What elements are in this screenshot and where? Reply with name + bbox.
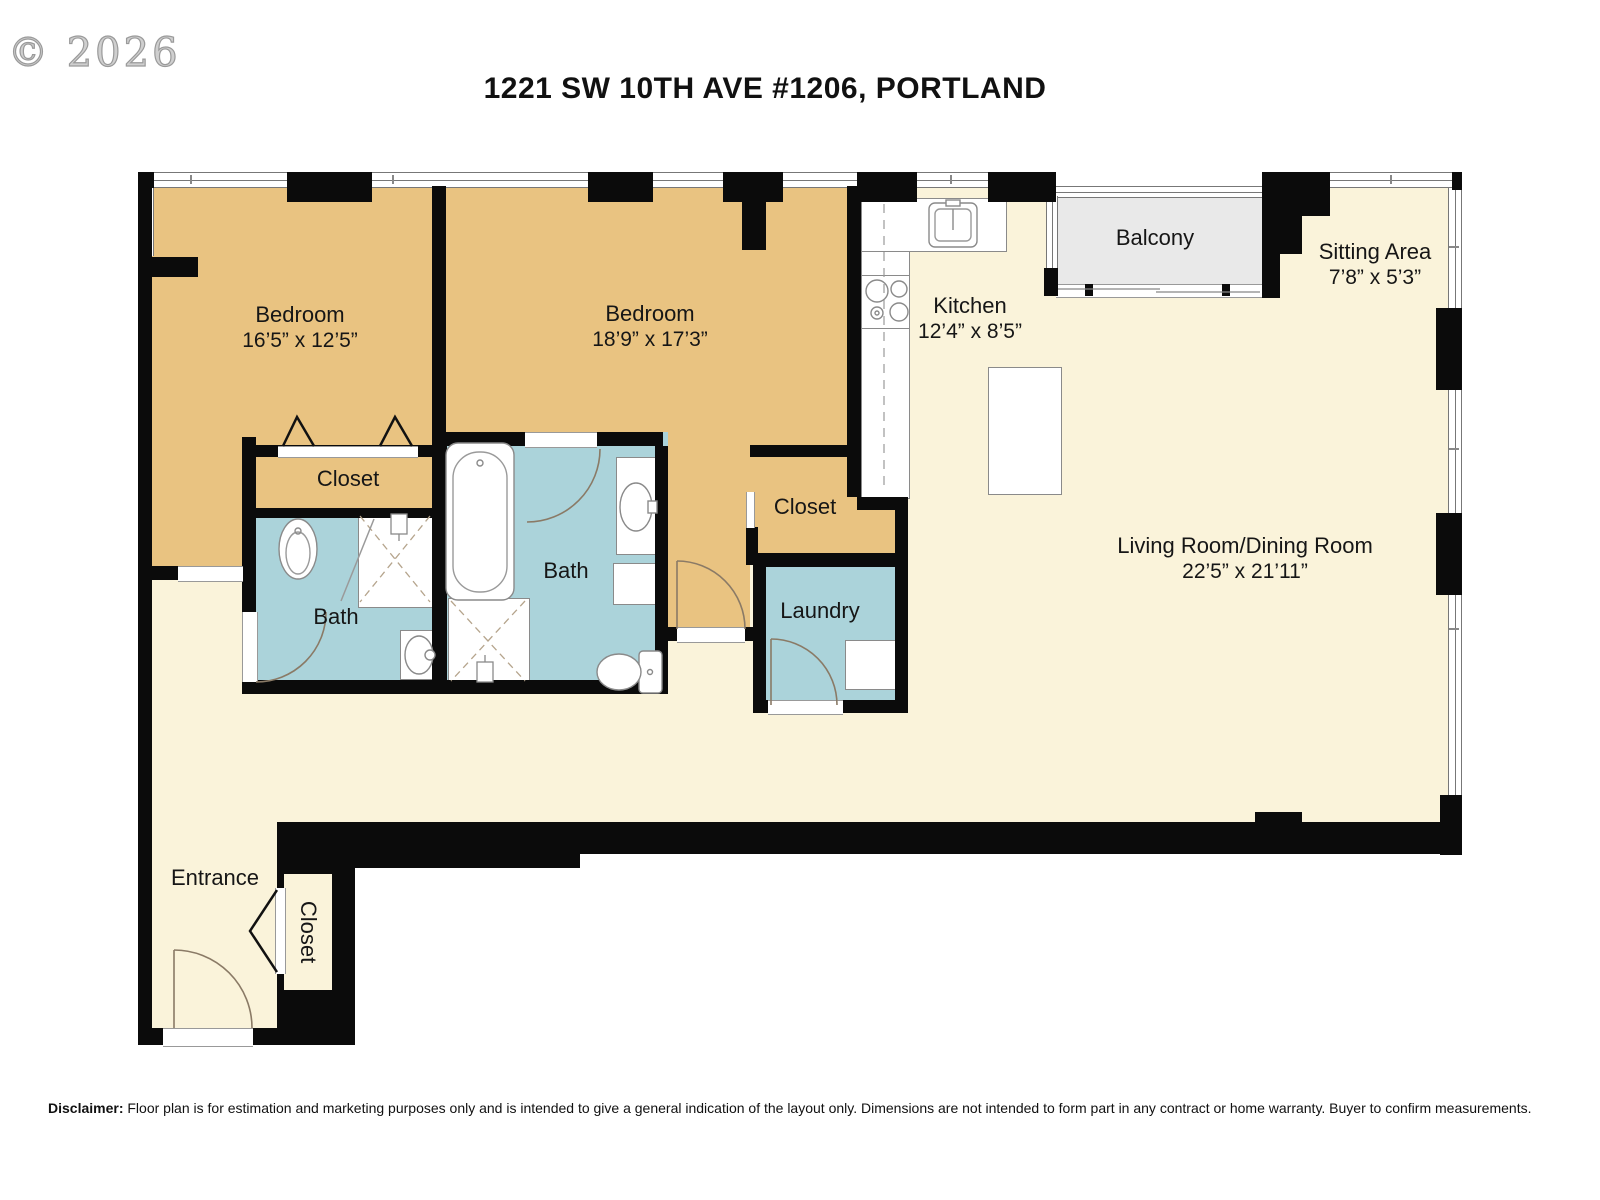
room-label-bedroom-2: Bedroom 18’9” x 17’3”: [592, 301, 708, 353]
wall-top-3-stem: [742, 186, 766, 250]
room-label-entrance: Entrance: [171, 865, 259, 891]
wall-left-step: [152, 257, 198, 277]
wall-closet-2-south: [753, 553, 908, 567]
window-mullion: [392, 175, 394, 184]
copyright-watermark: © 2026: [8, 30, 181, 76]
bath-2-door-opening: [525, 432, 597, 448]
balcony-door-stop: [1085, 284, 1093, 296]
window-mullion: [190, 175, 192, 184]
sink-2-counter: [616, 457, 660, 555]
vestibule-door-opening: [677, 627, 745, 643]
room-label-bedroom-1: Bedroom 16’5” x 12’5”: [242, 302, 358, 354]
wall-bath-2-east: [655, 446, 668, 694]
window-right: [1448, 188, 1462, 820]
page-title: 1221 SW 10TH AVE #1206, PORTLAND: [484, 72, 1047, 106]
wall-top-4: [857, 172, 917, 202]
wall-laundry-west: [753, 567, 766, 713]
floor-plan-page: © 2026 1221 SW 10TH AVE #1206, PORTLAND: [0, 0, 1600, 1200]
room-label-closet-1: Closet: [317, 466, 379, 492]
wall-closet-2-north: [750, 445, 861, 457]
wall-top-1: [287, 172, 372, 202]
window-mullion: [1449, 246, 1459, 248]
entry-door-opening: [163, 1028, 253, 1047]
washer-icon: [845, 640, 897, 690]
wall-closet-1-back: [256, 508, 432, 518]
wall-vestibule-r: [745, 627, 753, 641]
window-mullion: [1449, 628, 1459, 630]
bedroom-1-opening: [178, 566, 243, 582]
wall-balcony-step-2: [1262, 216, 1302, 254]
wall-kitchen-west: [847, 186, 861, 497]
laundry-door-opening: [768, 700, 843, 715]
room-label-kitchen: Kitchen 12’4” x 8’5”: [918, 293, 1022, 345]
room-label-balcony: Balcony: [1116, 225, 1194, 251]
wall-top-2: [588, 172, 653, 202]
shower-1-icon: [358, 512, 434, 608]
wall-bedroom-divider: [432, 186, 446, 450]
room-label-bath-1: Bath: [313, 604, 358, 630]
room-label-living-dining: Living Room/Dining Room 22’5” x 21’11”: [1117, 533, 1373, 585]
wall-right-1: [1436, 308, 1462, 390]
wall-vestibule-l: [665, 627, 677, 641]
closet-2-door-panel: [746, 492, 755, 528]
kitchen-counter-top: [861, 198, 1007, 252]
room-label-closet-entrance: Closet: [295, 901, 321, 963]
balcony-door-stop: [1222, 284, 1230, 296]
room-label-sitting-area: Sitting Area 7’8” x 5’3”: [1319, 239, 1432, 291]
wall-balcony-step-3: [1262, 254, 1280, 298]
wall-left: [138, 186, 152, 1045]
kitchen-island-icon: [988, 367, 1062, 495]
wall-south: [277, 822, 1462, 854]
wall-corner-tr: [1452, 172, 1462, 190]
room-label-bath-2: Bath: [543, 558, 588, 584]
balcony-railing-top: [1056, 186, 1262, 198]
wall-south-bump: [1255, 812, 1302, 824]
wall-balcony-west: [1044, 268, 1058, 296]
bedroom-2-vestibule-floor: [668, 432, 750, 640]
window-mullion: [950, 175, 952, 184]
wall-baths-south: [242, 680, 668, 694]
wall-baths-divider: [432, 437, 447, 694]
bedroom-1-floor-ext: [152, 450, 256, 566]
window-mullion: [1390, 175, 1392, 184]
room-label-closet-2: Closet: [774, 494, 836, 520]
closet-entrance-bifold: [275, 888, 286, 974]
wall-balcony-step-1: [1262, 172, 1330, 216]
window-mullion: [1449, 448, 1459, 450]
wall-right-2: [1436, 513, 1462, 595]
stove-icon: [861, 275, 910, 329]
shower-2-icon: [448, 598, 530, 686]
bath-1-door-opening: [242, 612, 258, 682]
wall-laundry-east: [895, 510, 908, 713]
closet-1-door-opening: [278, 446, 418, 458]
wall-top-5: [988, 172, 1056, 202]
balcony-door-jamb: [1046, 196, 1058, 268]
room-label-laundry: Laundry: [780, 598, 860, 624]
bath-2-cabinet: [613, 563, 660, 605]
wall-kitchen-step: [857, 497, 908, 510]
disclaimer-text: Disclaimer: Floor plan is for estimation…: [48, 1100, 1568, 1116]
